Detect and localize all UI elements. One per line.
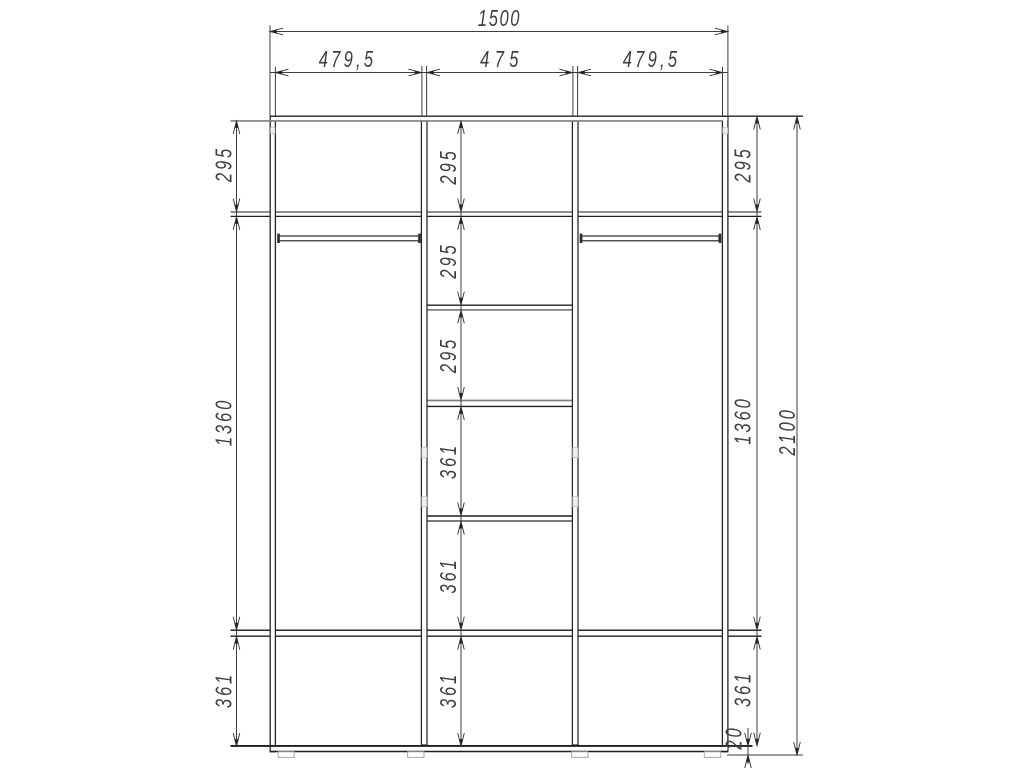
svg-text:479,5: 479,5 [319, 47, 377, 72]
svg-text:361: 361 [436, 672, 461, 708]
svg-text:361: 361 [436, 443, 461, 479]
svg-text:475: 475 [480, 47, 524, 72]
svg-text:361: 361 [212, 672, 237, 708]
svg-text:479,5: 479,5 [623, 47, 681, 72]
svg-text:295: 295 [436, 242, 461, 279]
svg-text:1360: 1360 [212, 398, 237, 446]
svg-text:295: 295 [436, 337, 461, 374]
svg-text:20: 20 [722, 725, 747, 750]
svg-text:295: 295 [731, 146, 756, 183]
svg-text:295: 295 [436, 148, 461, 185]
svg-text:1500: 1500 [478, 6, 521, 31]
svg-text:1360: 1360 [731, 396, 756, 444]
svg-text:361: 361 [436, 557, 461, 593]
svg-text:361: 361 [731, 671, 756, 707]
svg-text:295: 295 [212, 146, 237, 183]
svg-text:2100: 2100 [775, 407, 800, 456]
